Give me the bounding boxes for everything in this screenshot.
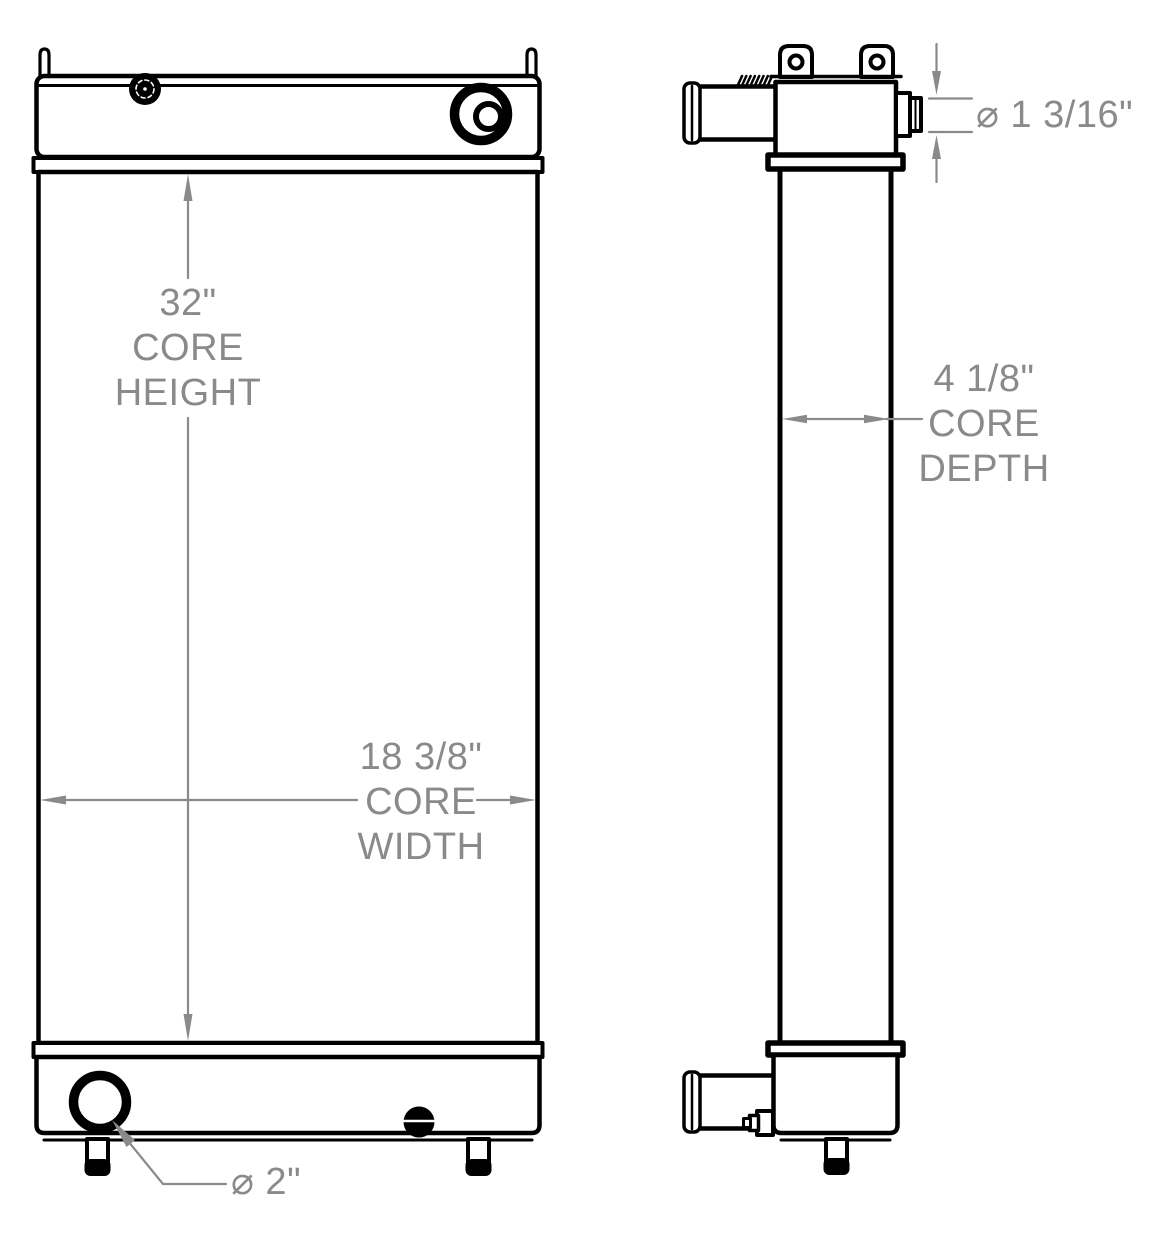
radiator-side-view	[684, 46, 921, 1175]
core-width-word1: CORE	[301, 780, 541, 825]
front-bottom-port-icon	[74, 1076, 127, 1129]
core-depth-word2: DEPTH	[864, 447, 1104, 492]
core-height-word2: HEIGHT	[68, 371, 308, 416]
bottom-port-diameter-label: ⌀ 2"	[231, 1160, 301, 1205]
filler-cap-icon	[129, 73, 161, 105]
mounting-tab-left-icon	[780, 46, 812, 77]
core-height-word1: CORE	[68, 326, 308, 371]
drawing-canvas: 32" CORE HEIGHT 18 3/8" CORE WIDTH 4 1/8…	[0, 0, 1166, 1253]
core-height-value: 32"	[68, 281, 308, 326]
side-foot-icon	[824, 1139, 850, 1175]
core-height-label: 32" CORE HEIGHT	[68, 281, 308, 416]
front-leg-left-icon	[85, 1139, 111, 1176]
top-port-diameter-label: ⌀ 1 3/16"	[976, 93, 1133, 138]
hose-clamp-icon	[737, 76, 772, 87]
top-port-diameter-dimension	[929, 44, 972, 182]
side-top-band	[768, 155, 903, 169]
core-width-value: 18 3/8"	[301, 735, 541, 780]
mounting-tab-right-icon	[861, 46, 893, 77]
drawing-svg	[0, 0, 1166, 1253]
core-depth-label: 4 1/8" CORE DEPTH	[864, 357, 1104, 492]
core-width-word2: WIDTH	[301, 825, 541, 870]
core-depth-word1: CORE	[864, 402, 1104, 447]
core-width-label: 18 3/8" CORE WIDTH	[301, 735, 541, 870]
core-depth-value: 4 1/8"	[864, 357, 1104, 402]
side-bottom-tank	[774, 1055, 898, 1133]
front-leg-right-icon	[466, 1139, 492, 1176]
side-top-port-icon	[896, 93, 921, 136]
drain-plug-icon	[404, 1107, 435, 1138]
side-top-tank	[776, 82, 897, 157]
radiator-front-view	[34, 49, 543, 1176]
side-top-pipe-icon	[684, 83, 779, 143]
